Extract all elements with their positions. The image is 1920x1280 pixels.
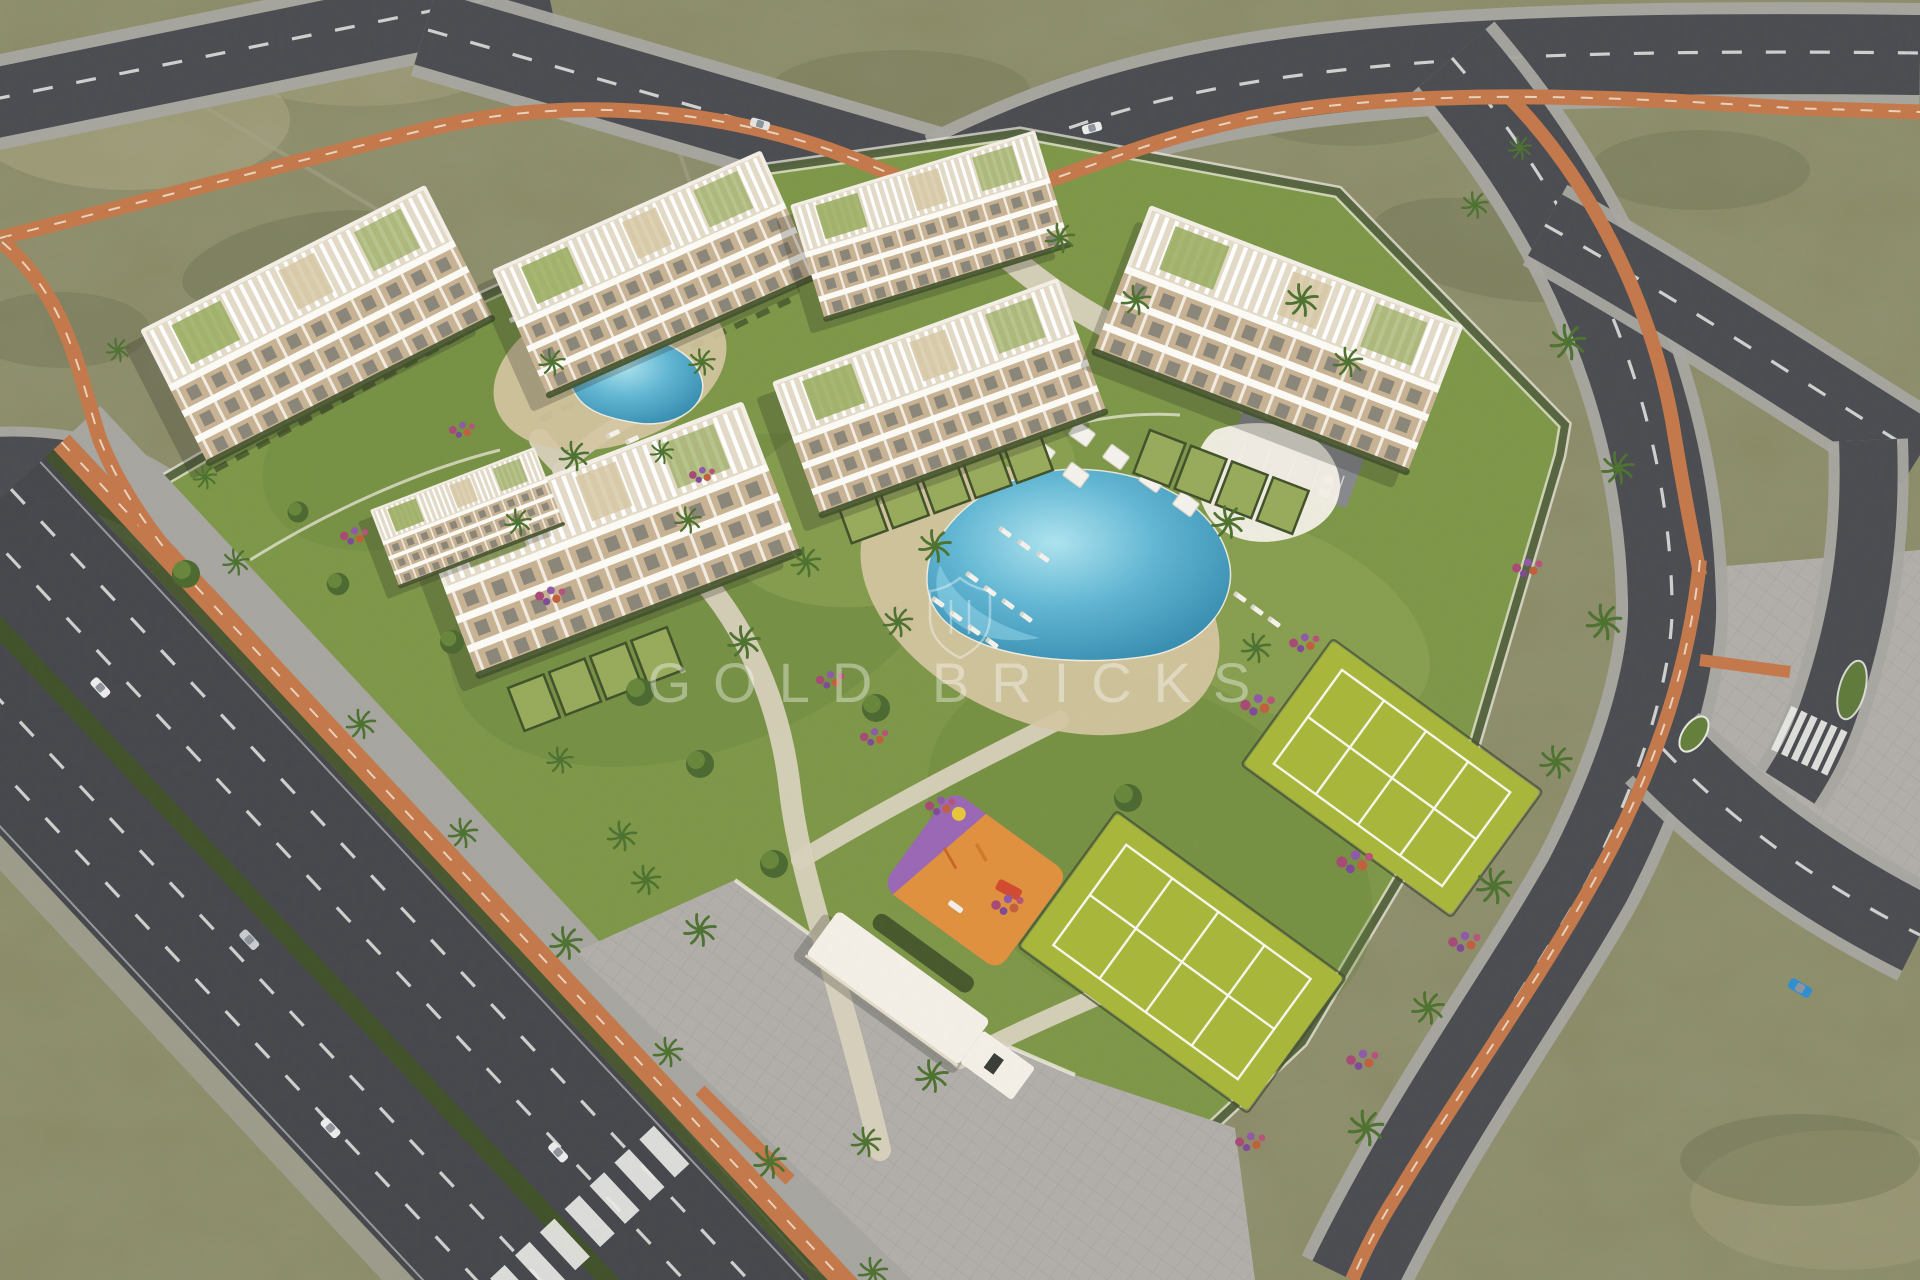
scene-canvas: GOLD BRICKS [0, 0, 1920, 1280]
grain-overlay [0, 0, 1920, 1280]
aerial-render: GOLD BRICKS [0, 0, 1920, 1280]
